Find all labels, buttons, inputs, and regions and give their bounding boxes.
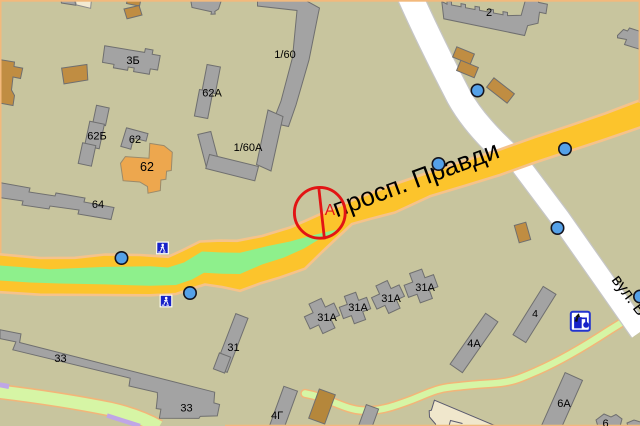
svg-text:4А: 4А xyxy=(467,338,481,350)
svg-text:31: 31 xyxy=(227,342,239,354)
svg-text:2: 2 xyxy=(486,7,492,19)
svg-text:А: А xyxy=(325,202,336,219)
svg-text:31А: 31А xyxy=(317,312,337,324)
svg-text:62: 62 xyxy=(129,134,141,146)
svg-text:62А: 62А xyxy=(202,87,222,99)
svg-text:3Б: 3Б xyxy=(126,55,139,67)
svg-text:33: 33 xyxy=(54,353,66,365)
svg-text:4: 4 xyxy=(532,308,538,320)
svg-text:62: 62 xyxy=(140,160,154,174)
svg-text:62Б: 62Б xyxy=(87,130,106,142)
svg-text:31А: 31А xyxy=(381,293,401,305)
svg-text:1/60: 1/60 xyxy=(274,49,295,61)
svg-text:6А: 6А xyxy=(557,398,571,410)
svg-text:31А: 31А xyxy=(415,282,435,294)
svg-text:6: 6 xyxy=(602,418,608,426)
svg-text:64: 64 xyxy=(92,199,104,211)
svg-text:1/60А: 1/60А xyxy=(234,142,263,154)
svg-text:33: 33 xyxy=(180,402,192,414)
svg-text:4Г: 4Г xyxy=(271,410,283,422)
svg-text:31А: 31А xyxy=(348,302,368,314)
